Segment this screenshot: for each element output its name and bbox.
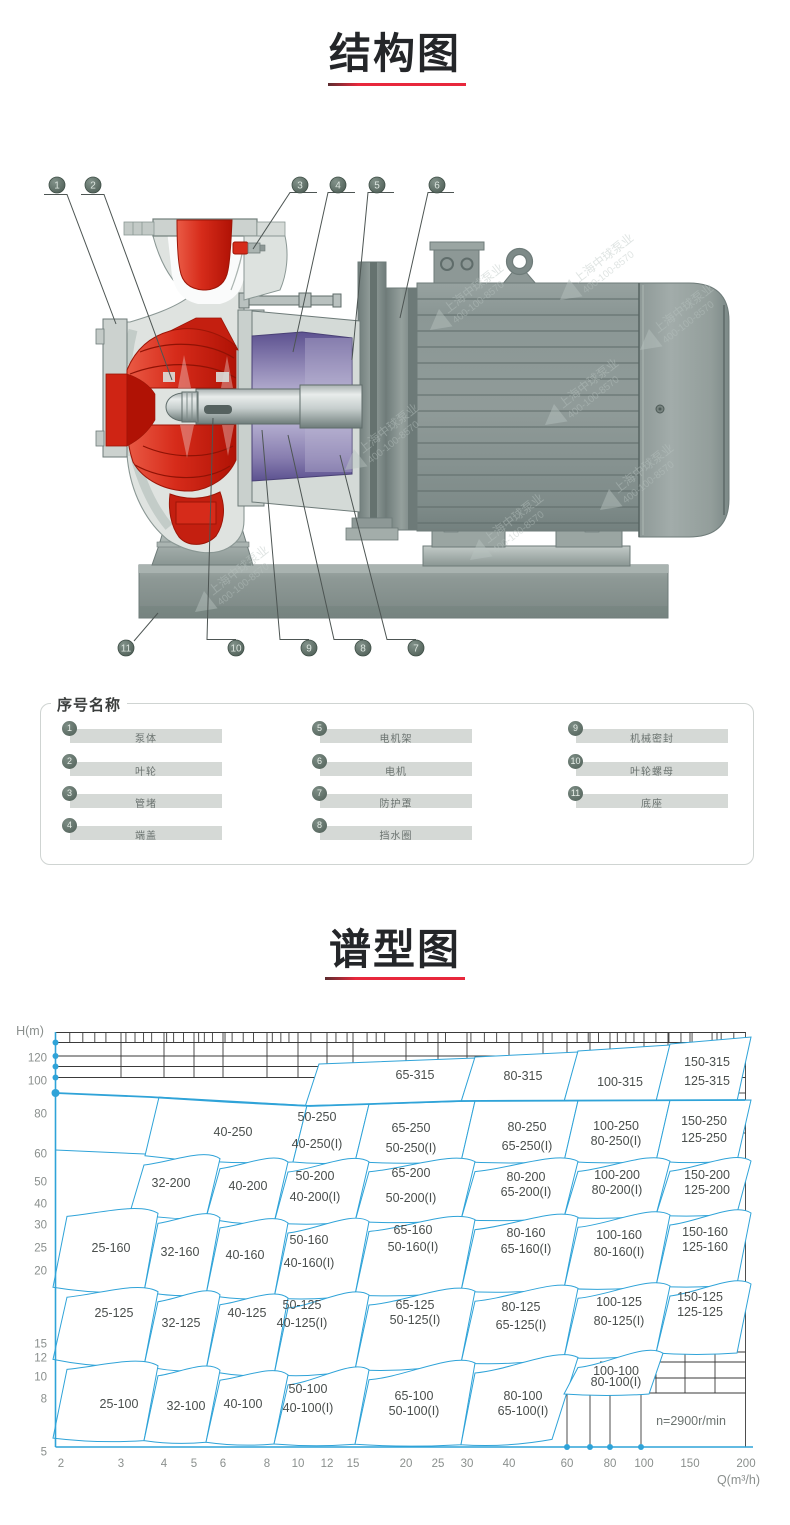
svg-text:100-125: 100-125 [596,1295,642,1309]
svg-text:80-160(I): 80-160(I) [594,1245,645,1259]
svg-text:40-100(I): 40-100(I) [283,1401,334,1415]
svg-text:40-160: 40-160 [226,1248,265,1262]
svg-text:4: 4 [161,1458,168,1470]
svg-text:12: 12 [34,1353,47,1365]
svg-text:1: 1 [54,181,60,192]
svg-text:80-100: 80-100 [504,1389,543,1403]
svg-text:15: 15 [34,1339,47,1351]
svg-text:65-160: 65-160 [394,1223,433,1237]
svg-text:40: 40 [34,1199,47,1211]
svg-text:60: 60 [561,1458,574,1470]
svg-text:100-200: 100-200 [594,1168,640,1182]
svg-text:50-160(I): 50-160(I) [388,1240,439,1254]
svg-text:50-125(I): 50-125(I) [390,1313,441,1327]
svg-text:8: 8 [41,1394,47,1406]
svg-text:80: 80 [34,1109,47,1121]
svg-text:50-100: 50-100 [289,1382,328,1396]
svg-text:50-200: 50-200 [296,1169,335,1183]
svg-text:25-125: 25-125 [95,1306,134,1320]
svg-text:50-125: 50-125 [283,1298,322,1312]
svg-text:32-200: 32-200 [152,1176,191,1190]
svg-text:150-250: 150-250 [681,1114,727,1128]
svg-text:40-200(I): 40-200(I) [290,1190,341,1204]
svg-text:Q(m³/h): Q(m³/h) [717,1473,760,1487]
svg-text:65-315: 65-315 [396,1068,435,1082]
svg-text:32-160: 32-160 [161,1245,200,1259]
svg-text:65-100: 65-100 [395,1389,434,1403]
svg-text:25-100: 25-100 [100,1397,139,1411]
svg-text:50-160: 50-160 [290,1233,329,1247]
svg-text:25: 25 [34,1243,47,1255]
svg-text:4: 4 [335,181,341,192]
svg-text:32-100: 32-100 [167,1399,206,1413]
svg-text:2: 2 [58,1458,64,1470]
svg-text:65-250: 65-250 [392,1121,431,1135]
svg-text:5: 5 [374,181,380,192]
svg-text:125-125: 125-125 [677,1305,723,1319]
svg-text:50-250: 50-250 [298,1110,337,1124]
svg-text:25-160: 25-160 [92,1241,131,1255]
svg-text:125-250: 125-250 [681,1131,727,1145]
svg-text:150-125: 150-125 [677,1290,723,1304]
svg-text:65-125: 65-125 [396,1298,435,1312]
svg-text:5: 5 [41,1447,47,1459]
svg-text:40-125: 40-125 [228,1306,267,1320]
svg-text:11: 11 [121,644,132,655]
svg-text:65-200(I): 65-200(I) [501,1185,552,1199]
svg-text:2: 2 [90,181,96,192]
svg-text:50-100(I): 50-100(I) [389,1404,440,1418]
svg-text:65-125(I): 65-125(I) [496,1318,547,1332]
svg-text:8: 8 [360,644,366,655]
svg-text:25: 25 [432,1458,445,1470]
svg-text:80-125: 80-125 [502,1300,541,1314]
svg-text:65-250(I): 65-250(I) [502,1139,553,1153]
svg-text:6: 6 [220,1458,226,1470]
svg-text:65-160(I): 65-160(I) [501,1242,552,1256]
svg-text:20: 20 [34,1266,47,1278]
svg-text:50-250(I): 50-250(I) [386,1141,437,1155]
svg-text:100-160: 100-160 [596,1228,642,1242]
svg-text:5: 5 [191,1458,197,1470]
svg-text:80-250: 80-250 [508,1120,547,1134]
svg-text:40-250(I): 40-250(I) [292,1137,343,1151]
svg-text:40-100: 40-100 [224,1397,263,1411]
svg-text:80: 80 [604,1458,617,1470]
svg-text:20: 20 [400,1458,413,1470]
svg-text:32-125: 32-125 [162,1316,201,1330]
svg-text:7: 7 [413,644,419,655]
svg-text:40-250: 40-250 [214,1125,253,1139]
svg-text:30: 30 [34,1220,47,1232]
svg-text:65-200: 65-200 [392,1166,431,1180]
svg-text:10: 10 [34,1372,47,1384]
svg-text:100-250: 100-250 [593,1119,639,1133]
svg-text:80-200(I): 80-200(I) [592,1183,643,1197]
svg-text:n=2900r/min: n=2900r/min [656,1414,726,1428]
svg-text:200: 200 [736,1458,755,1470]
svg-text:H(m): H(m) [16,1024,44,1038]
svg-text:60: 60 [34,1149,47,1161]
svg-text:65-100(I): 65-100(I) [498,1404,549,1418]
svg-text:10: 10 [292,1458,305,1470]
svg-text:15: 15 [347,1458,360,1470]
svg-text:100: 100 [28,1076,47,1088]
svg-text:30: 30 [461,1458,474,1470]
svg-text:6: 6 [434,181,440,192]
svg-text:150: 150 [680,1458,699,1470]
svg-text:40-200: 40-200 [229,1179,268,1193]
svg-text:125-315: 125-315 [684,1074,730,1088]
svg-text:150-315: 150-315 [684,1055,730,1069]
svg-text:150-160: 150-160 [682,1225,728,1239]
svg-text:80-125(I): 80-125(I) [594,1314,645,1328]
svg-text:8: 8 [264,1458,270,1470]
svg-text:150-200: 150-200 [684,1168,730,1182]
svg-text:100: 100 [634,1458,653,1470]
svg-text:80-160: 80-160 [507,1226,546,1240]
svg-text:40: 40 [503,1458,516,1470]
svg-text:80-100(I): 80-100(I) [591,1375,642,1389]
svg-text:50: 50 [34,1177,47,1189]
svg-text:40-125(I): 40-125(I) [277,1316,328,1330]
svg-text:12: 12 [321,1458,334,1470]
svg-text:40-160(I): 40-160(I) [284,1256,335,1270]
svg-text:125-200: 125-200 [684,1183,730,1197]
svg-text:120: 120 [28,1053,47,1065]
svg-text:100-315: 100-315 [597,1075,643,1089]
svg-text:125-160: 125-160 [682,1240,728,1254]
svg-text:80-250(I): 80-250(I) [591,1134,642,1148]
svg-text:9: 9 [306,644,312,655]
svg-text:80-315: 80-315 [504,1069,543,1083]
svg-text:50-200(I): 50-200(I) [386,1191,437,1205]
svg-text:80-200: 80-200 [507,1170,546,1184]
svg-text:3: 3 [118,1458,124,1470]
svg-text:10: 10 [230,644,242,655]
svg-text:3: 3 [297,181,303,192]
